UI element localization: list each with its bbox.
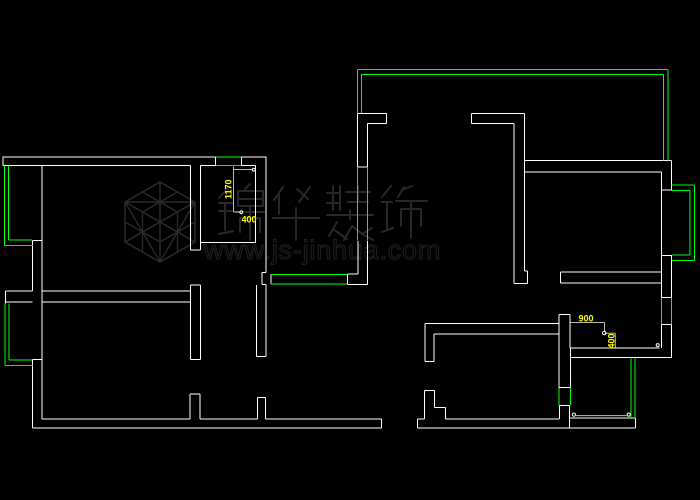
svg-text:400: 400 <box>242 215 257 225</box>
svg-text:900: 900 <box>579 314 594 324</box>
svg-text:400: 400 <box>607 333 617 348</box>
svg-text:1170: 1170 <box>224 179 234 199</box>
svg-text:www.js-jinhua.com: www.js-jinhua.com <box>203 235 441 265</box>
